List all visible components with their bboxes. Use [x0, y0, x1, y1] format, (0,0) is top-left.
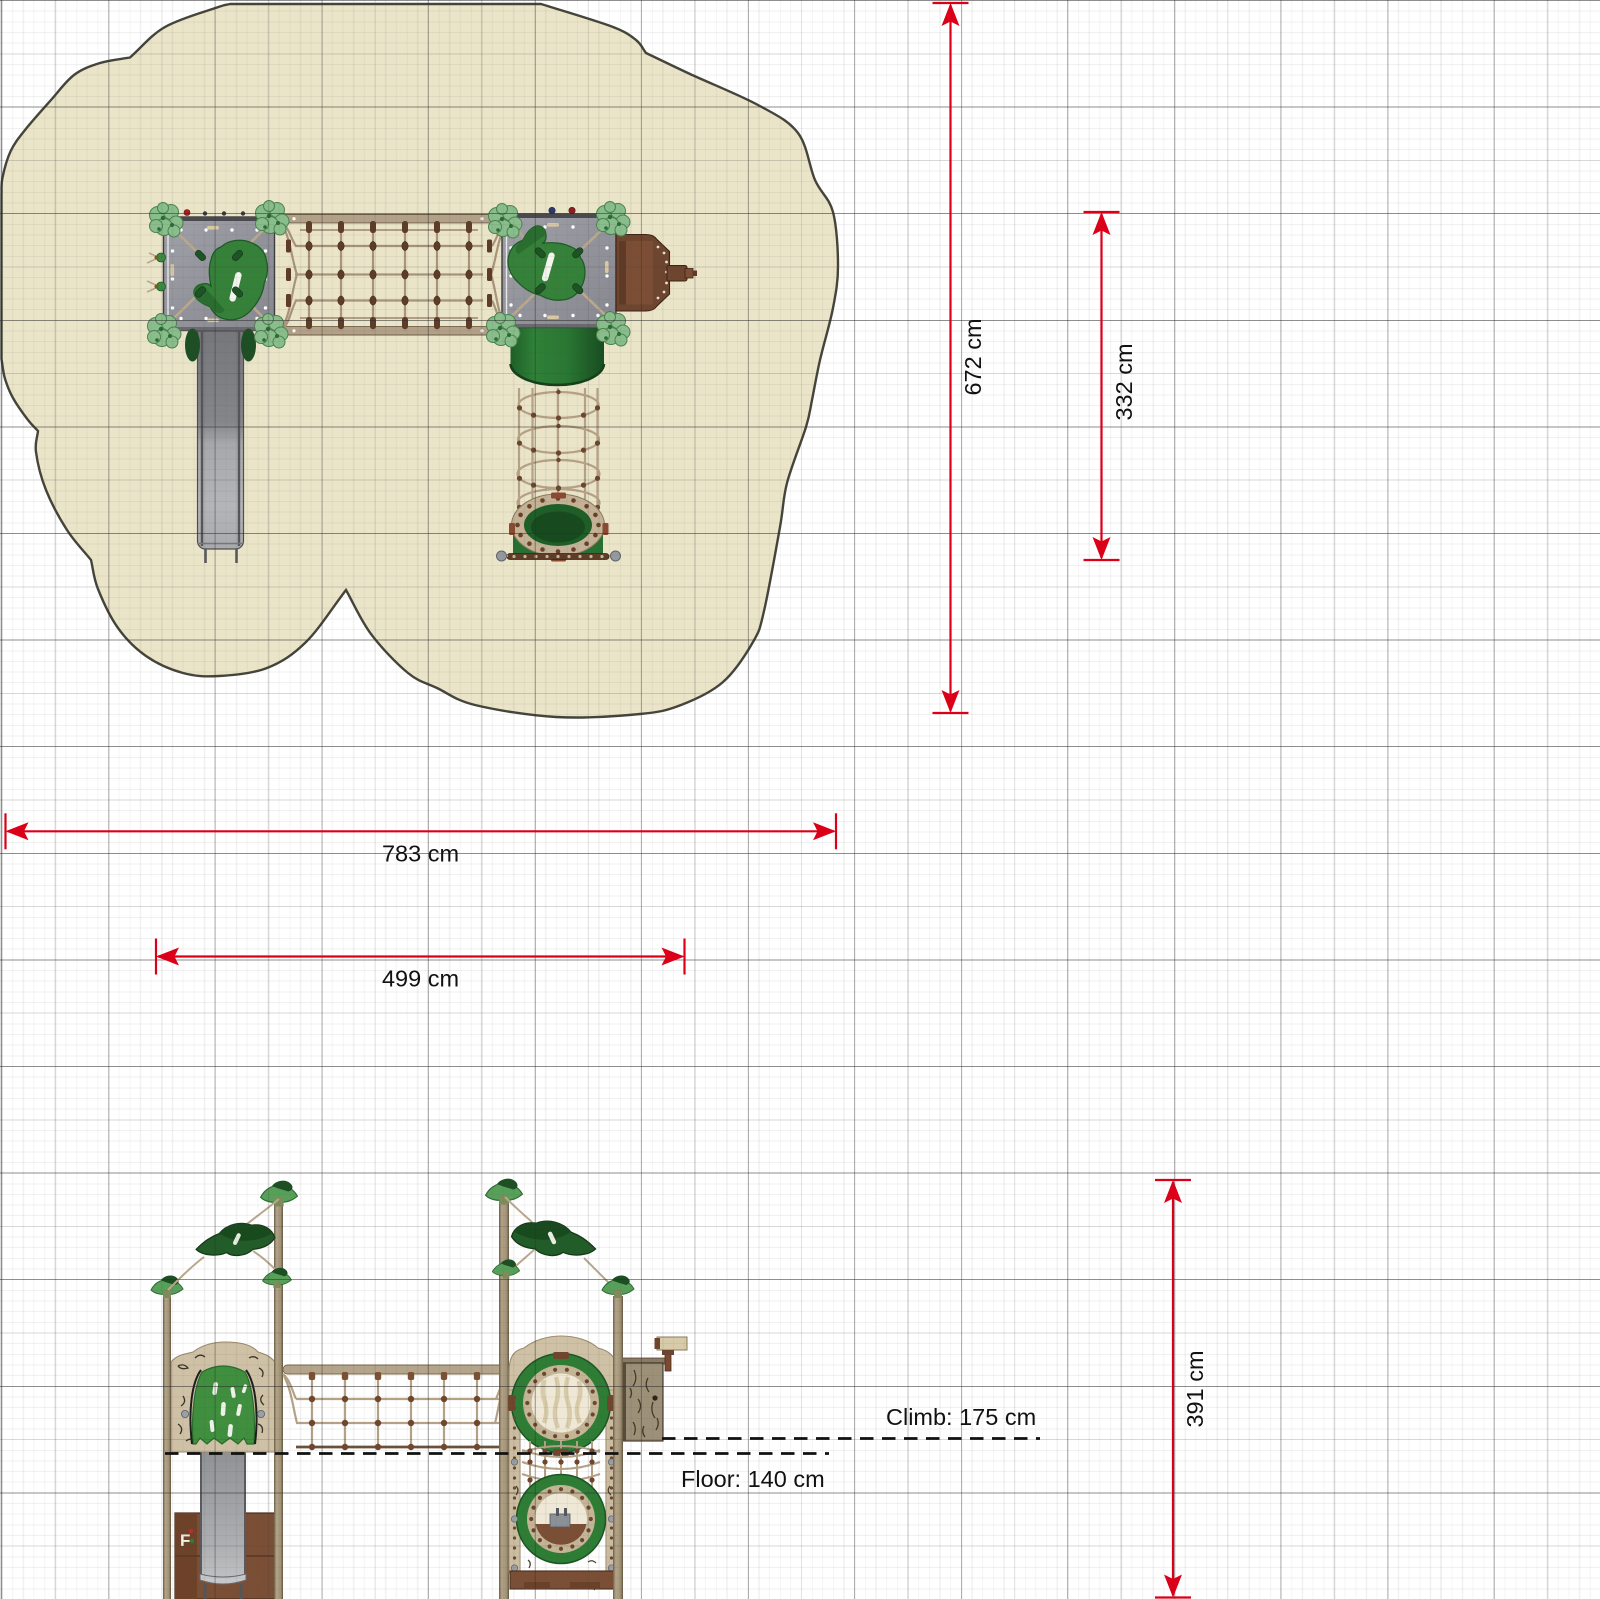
- svg-text:Floor: 140 cm: Floor: 140 cm: [681, 1466, 825, 1492]
- svg-text:Climb: 175 cm: Climb: 175 cm: [886, 1404, 1036, 1430]
- svg-text:672 cm: 672 cm: [960, 318, 986, 395]
- svg-text:783 cm: 783 cm: [382, 841, 459, 867]
- svg-text:332 cm: 332 cm: [1111, 343, 1137, 420]
- svg-text:391 cm: 391 cm: [1182, 1350, 1208, 1427]
- svg-text:499 cm: 499 cm: [382, 966, 459, 992]
